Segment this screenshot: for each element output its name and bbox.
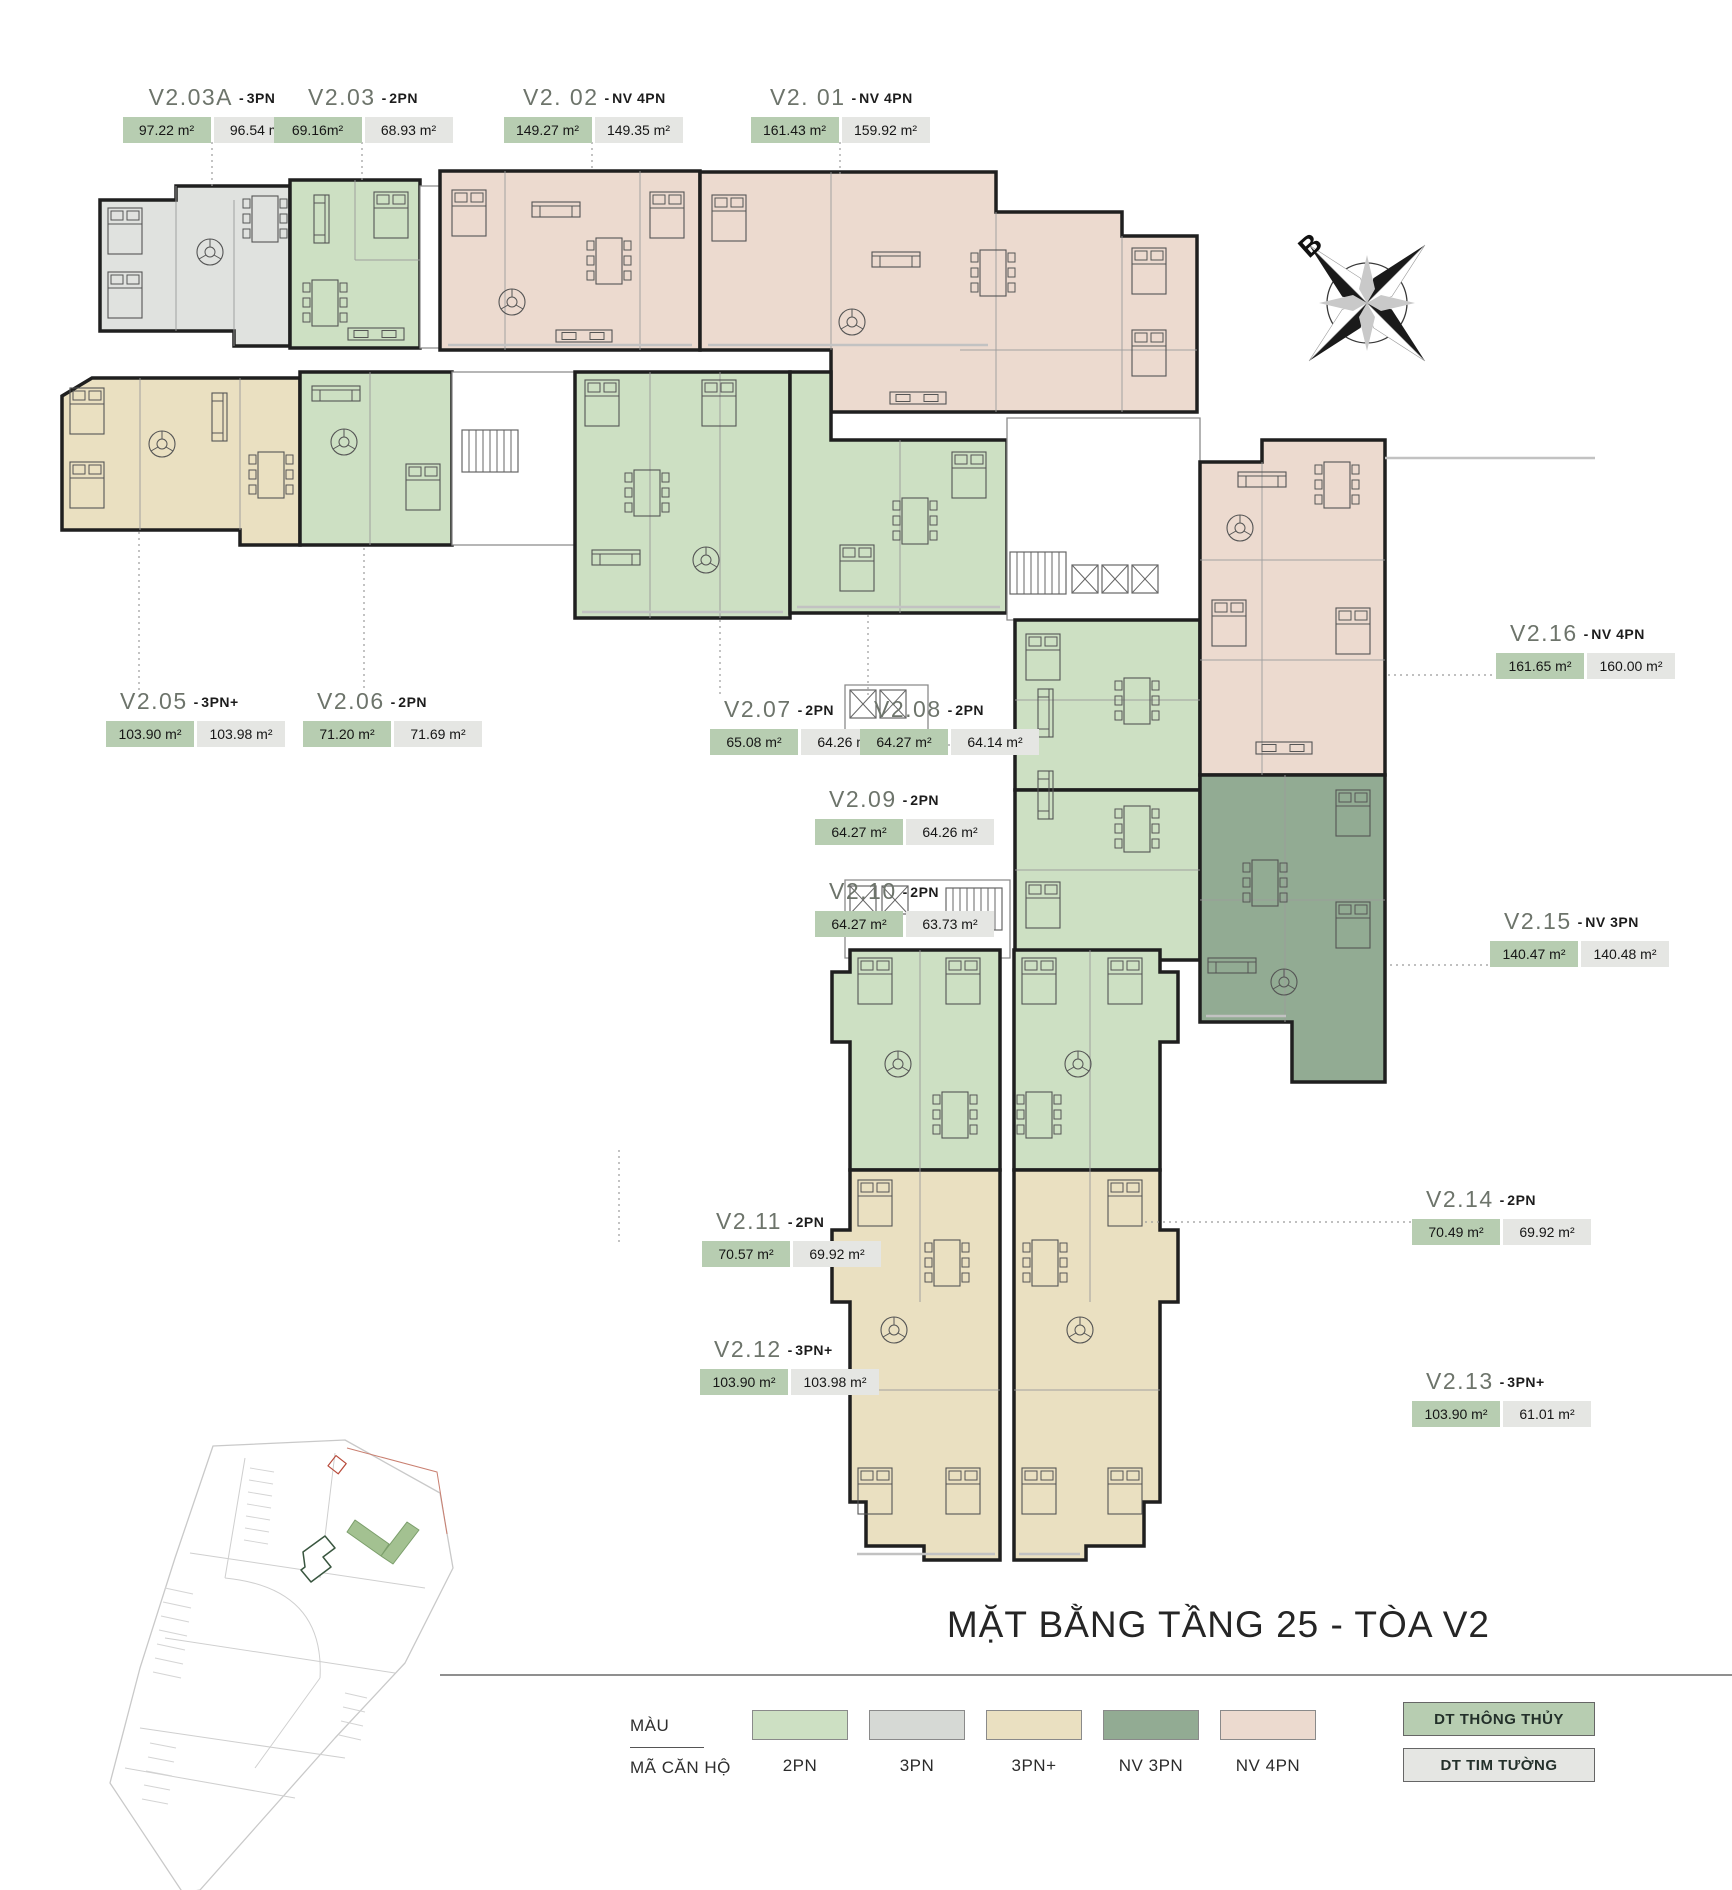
area-clear-badge: 71.20 m² [303,721,391,747]
unit-shape-v2-13[interactable] [1014,1170,1178,1560]
badge-clear-area: DT THÔNG THỦY [1403,1702,1595,1736]
area-clear-badge: 64.27 m² [860,729,948,755]
legend-key: MÀU MÃ CĂN HỘ [630,1716,731,1778]
swatch-nv3pn [1103,1710,1199,1740]
area-clear-badge: 103.90 m² [1412,1401,1500,1427]
area-wall-badge: 71.69 m² [394,721,482,747]
unit-label-v2-10: V2.10-2PN 64.27 m²63.73 m² [815,880,994,937]
area-wall-badge: 140.48 m² [1581,941,1669,967]
area-clear-badge: 103.90 m² [700,1369,788,1395]
page-title: MẶT BẰNG TẦNG 25 - TÒA V2 [740,1604,1490,1646]
legend-type-nv3pn: NV 3PN [1103,1710,1199,1776]
legend-type-nv4pn: NV 4PN [1220,1710,1316,1776]
unit-label-v2-06: V2.06-2PN 71.20 m²71.69 m² [303,690,482,747]
area-clear-badge: 161.65 m² [1496,653,1584,679]
badge-wall-area: DT TIM TƯỜNG [1403,1748,1595,1782]
unit-label-v2-12: V2.12-3PN+ 103.90 m²103.98 m² [700,1338,879,1395]
swatch-nv4pn [1220,1710,1316,1740]
unit-shape-v2-03a[interactable] [100,186,290,346]
area-wall-badge: 61.01 m² [1503,1401,1591,1427]
area-wall-badge: 64.26 m² [906,819,994,845]
unit-label-v2-16: V2.16-NV 4PN 161.65 m²160.00 m² [1496,622,1675,679]
area-wall-badge: 149.35 m² [595,117,683,143]
area-clear-badge: 65.08 m² [710,729,798,755]
unit-shape-v2-07[interactable] [575,372,790,618]
swatch-3pn-plus [986,1710,1082,1740]
compass-rose: B [1292,227,1434,370]
unit-label-v2-11: V2.11-2PN 70.57 m²69.92 m² [702,1210,881,1267]
unit-label-v2-08: V2.08-2PN 64.27 m²64.14 m² [860,698,1039,755]
area-clear-badge: 64.27 m² [815,911,903,937]
swatch-2pn [752,1710,848,1740]
unit-label-v2-14: V2.14-2PN 70.49 m²69.92 m² [1412,1188,1591,1245]
legend-type-2pn: 2PN [752,1710,848,1776]
site-map-tower-footprint [301,1536,335,1582]
area-wall-badge: 69.92 m² [1503,1219,1591,1245]
unit-shape-v2-11[interactable] [832,950,1000,1170]
unit-label-v2-13: V2.13-3PN+ 103.90 m²61.01 m² [1412,1370,1591,1427]
area-clear-badge: 69.16m² [274,117,362,143]
unit-label-v2-01: V2. 01-NV 4PN 161.43 m²159.92 m² [770,86,910,143]
swatch-3pn [869,1710,965,1740]
unit-label-v2-03a: V2.03A-3PN 97.22 m²96.54 m² [137,86,287,143]
area-clear-badge: 161.43 m² [751,117,839,143]
unit-shape-v2-15[interactable] [1200,775,1385,1082]
unit-label-v2-05: V2.05-3PN+ 103.90 m²103.98 m² [106,690,285,747]
legend-color-label: MÀU [630,1716,731,1736]
unit-label-v2-02: V2. 02-NV 4PN 149.27 m²149.35 m² [523,86,663,143]
legend-code-label: MÃ CĂN HỘ [630,1758,731,1778]
area-clear-badge: 97.22 m² [123,117,211,143]
area-wall-badge: 69.92 m² [793,1241,881,1267]
area-clear-badge: 149.27 m² [504,117,592,143]
area-wall-badge: 64.14 m² [951,729,1039,755]
legend-divider [630,1747,704,1748]
unit-shape-v2-14[interactable] [1014,950,1178,1170]
unit-shape-v2-09[interactable] [1015,620,1200,790]
area-clear-badge: 70.57 m² [702,1241,790,1267]
stairs-west [462,430,518,472]
unit-label-v2-09: V2.09-2PN 64.27 m²64.26 m² [815,788,994,845]
area-clear-badge: 140.47 m² [1490,941,1578,967]
area-wall-badge: 103.98 m² [197,721,285,747]
unit-label-v2-15: V2.15-NV 3PN 140.47 m²140.48 m² [1490,910,1669,967]
unit-shape-v2-02[interactable] [440,171,700,350]
title-divider [440,1674,1732,1676]
site-map-highlight-lot [328,1456,346,1474]
unit-shape-v2-10[interactable] [1015,790,1200,960]
floorplan-page: B V2.03A-3PN 97.22 m²96.54 m² V2.03-2PN … [0,0,1732,1890]
area-wall-badge: 159.92 m² [842,117,930,143]
unit-label-v2-03: V2.03-2PN 69.16m²68.93 m² [298,86,428,143]
area-wall-badge: 68.93 m² [365,117,453,143]
area-clear-badge: 103.90 m² [106,721,194,747]
area-wall-badge: 63.73 m² [906,911,994,937]
area-clear-badge: 64.27 m² [815,819,903,845]
entry-lobby [420,186,440,348]
legend-type-3pn-plus: 3PN+ [986,1710,1082,1776]
stairs-central [1010,552,1066,594]
site-map-project-building [347,1520,419,1564]
site-map [110,1440,453,1890]
legend-type-3pn: 3PN [869,1710,965,1776]
area-clear-badge: 70.49 m² [1412,1219,1500,1245]
unit-shape-v2-06[interactable] [300,372,452,545]
area-wall-badge: 160.00 m² [1587,653,1675,679]
area-wall-badge: 103.98 m² [791,1369,879,1395]
